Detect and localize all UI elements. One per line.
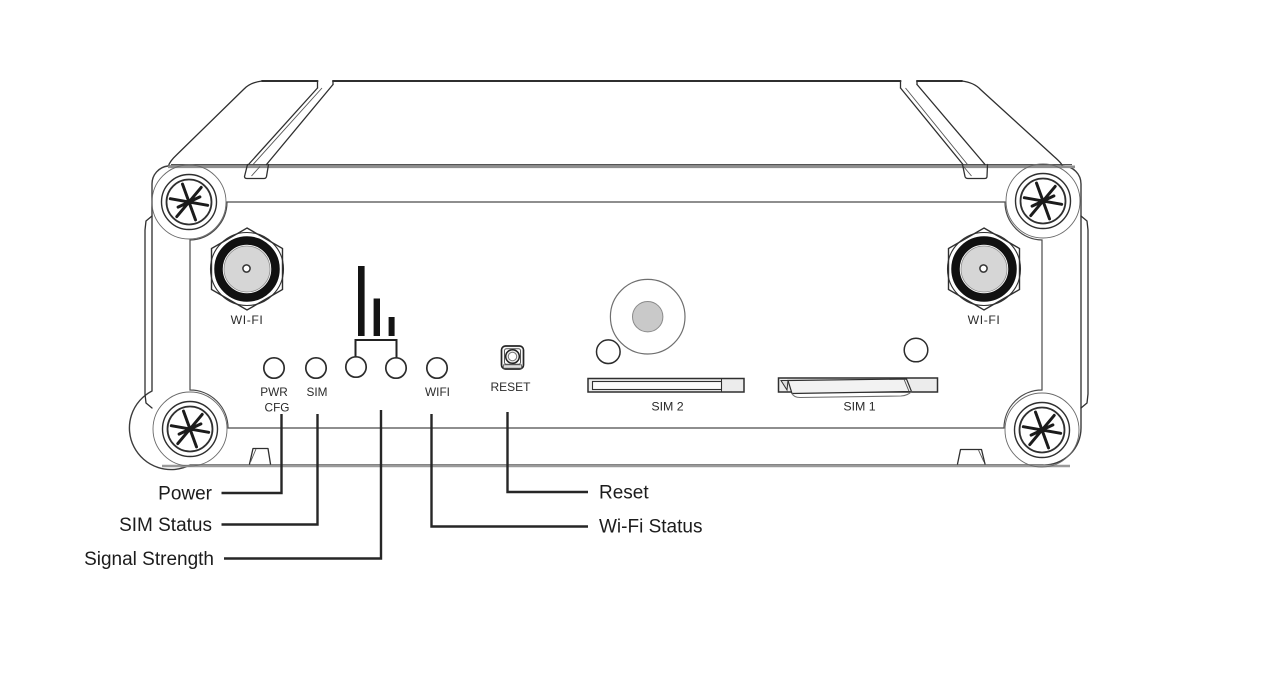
- reset-button-pin: [508, 352, 516, 360]
- led-label-cfg: CFG: [265, 401, 290, 415]
- sim1-label: SIM 1: [843, 400, 875, 414]
- callout-label-reset: Reset: [599, 483, 649, 504]
- groove-right-inner: [906, 88, 968, 165]
- led-label-wifi: WIFI: [425, 385, 450, 399]
- diagram-canvas: WI-FI WI-FI: [0, 0, 1286, 680]
- signal-led-left: [346, 357, 366, 378]
- antenna-right-label: WI-FI: [968, 313, 1001, 327]
- top-right-slope: [962, 81, 1063, 166]
- callout-label-sim-status: SIM Status: [119, 515, 212, 536]
- signal-bar-tall: [358, 266, 365, 336]
- callout-label-power: Power: [158, 484, 213, 505]
- corner-screw-top-right: [1006, 164, 1080, 238]
- mounting-groove-left: [245, 81, 334, 179]
- groove-left-inner: [253, 88, 322, 165]
- buzzer-hole-inner: [633, 302, 663, 332]
- led-label-sim: SIM: [307, 385, 328, 399]
- antenna-left-label: WI-FI: [231, 313, 264, 327]
- wifi-led: [427, 358, 447, 379]
- mounting-groove-right: [901, 81, 988, 179]
- device-front-face: [129, 166, 1088, 470]
- groove-right-walls: [901, 81, 918, 88]
- antenna-center-pin: [980, 265, 987, 272]
- callout-label-signal-strength: Signal Strength: [84, 549, 214, 570]
- corner-screw-top-left: [152, 165, 226, 239]
- reset-button-lip: [504, 365, 522, 368]
- signal-bar-short: [389, 317, 395, 336]
- corner-screw-bottom-right: [1005, 393, 1079, 467]
- sim1-tray: [788, 379, 912, 394]
- sim-led: [306, 358, 326, 379]
- groove-right-edges: [901, 85, 986, 165]
- pwr-cfg-led: [264, 358, 284, 379]
- sim2-tray: [593, 382, 722, 390]
- router-front-panel-diagram: WI-FI WI-FI: [0, 0, 1286, 680]
- side-wall-right: [1081, 216, 1088, 408]
- callout-label-wifi-status: Wi-Fi Status: [599, 517, 702, 538]
- hole-near-sim2: [597, 340, 621, 364]
- reset-button-label: RESET: [490, 380, 531, 394]
- sim2-label: SIM 2: [651, 400, 683, 414]
- reset-button: [502, 346, 524, 369]
- led-label-pwr: PWR: [260, 385, 288, 399]
- chassis-outline: [129, 166, 1081, 470]
- signal-bar-mid: [374, 299, 380, 337]
- top-left-slope: [169, 81, 263, 166]
- side-wall-left: [145, 216, 152, 408]
- antenna-center-pin: [243, 265, 250, 272]
- signal-led-right: [386, 358, 406, 379]
- groove-left-edges: [249, 85, 334, 165]
- corner-screw-bottom-left: [153, 392, 227, 466]
- device-top-face: [168, 81, 1075, 179]
- hole-near-sim1: [904, 338, 928, 362]
